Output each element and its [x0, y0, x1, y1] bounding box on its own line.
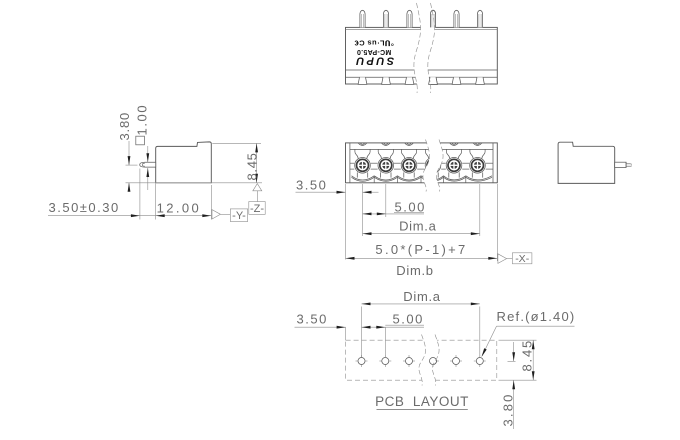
svg-text:-Z-: -Z-	[250, 203, 264, 215]
svg-text:SUPU: SUPU	[354, 55, 394, 67]
svg-text:Ref.(ø1.40): Ref.(ø1.40)	[497, 309, 576, 324]
svg-text:5.00: 5.00	[395, 200, 426, 215]
svg-text:5.0*(P-1)+7: 5.0*(P-1)+7	[375, 242, 467, 257]
svg-text:Dim.b: Dim.b	[396, 263, 433, 278]
svg-text:3.50: 3.50	[297, 312, 328, 327]
svg-text:Dim.a: Dim.a	[399, 219, 437, 234]
svg-text:3.80: 3.80	[501, 392, 516, 426]
svg-text:1.00: 1.00	[135, 104, 150, 136]
svg-text:8.45: 8.45	[520, 339, 535, 372]
svg-text:3.50±0.30: 3.50±0.30	[49, 200, 120, 215]
svg-text:12.00: 12.00	[157, 201, 202, 216]
svg-text:-Y-: -Y-	[232, 210, 246, 222]
svg-text:Dim.a: Dim.a	[403, 289, 441, 304]
svg-text:°𝐔L·us C€: °𝐔L·us C€	[354, 39, 394, 48]
svg-text:3.50: 3.50	[296, 177, 327, 192]
svg-text:MC-PA5.0: MC-PA5.0	[357, 48, 392, 55]
svg-text:PCB LAYOUT: PCB LAYOUT	[375, 394, 469, 409]
svg-text:-X-: -X-	[515, 253, 530, 265]
svg-text:5.00: 5.00	[393, 311, 424, 326]
svg-text:3.80: 3.80	[117, 112, 132, 141]
svg-text:8.45: 8.45	[245, 152, 260, 180]
